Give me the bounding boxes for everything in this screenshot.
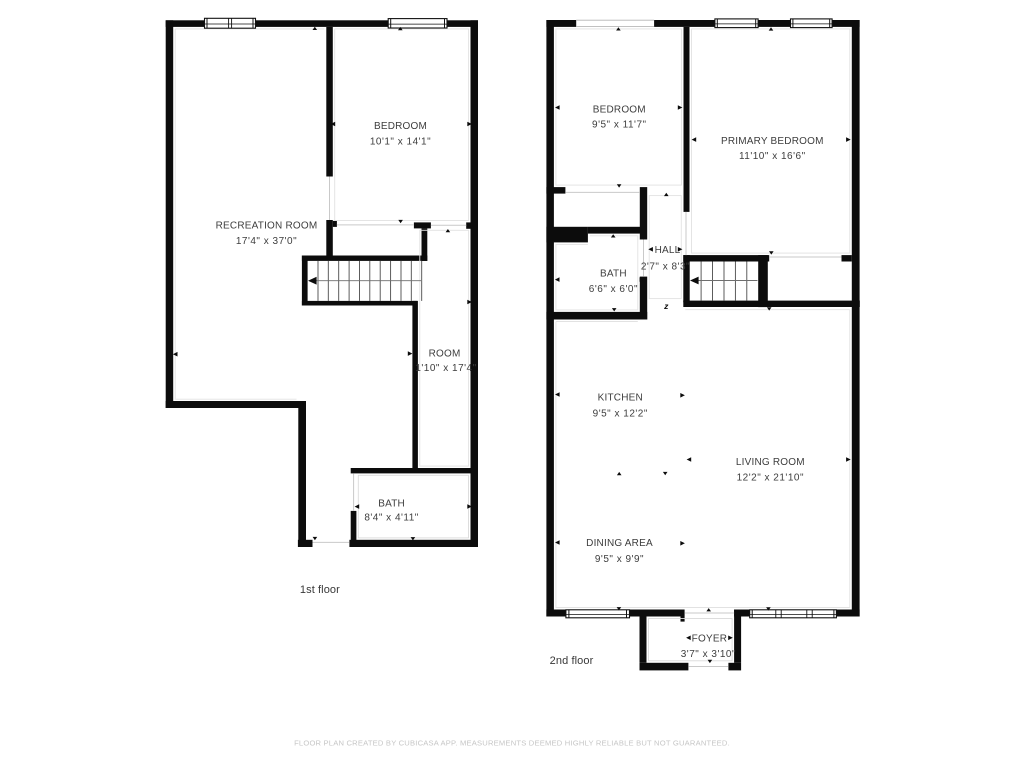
svg-text:BATH: BATH [600,268,627,279]
svg-text:FLOOR PLAN CREATED BY CUBICASA: FLOOR PLAN CREATED BY CUBICASA APP. MEAS… [294,738,730,747]
svg-text:1'10" x 17'4": 1'10" x 17'4" [415,363,476,374]
svg-text:10'1" x 14'1": 10'1" x 14'1" [370,137,431,148]
svg-text:11'10" x 16'6": 11'10" x 16'6" [739,151,806,162]
svg-text:PRIMARY BEDROOM: PRIMARY BEDROOM [721,136,824,147]
svg-text:8'4" x 4'11": 8'4" x 4'11" [364,513,419,524]
svg-text:BATH: BATH [378,498,405,509]
svg-text:RECREATION ROOM: RECREATION ROOM [216,221,318,232]
svg-text:2'7" x 8'3": 2'7" x 8'3" [641,261,690,272]
svg-text:9'5" x 11'7": 9'5" x 11'7" [592,119,647,130]
svg-text:z: z [663,301,669,311]
svg-text:BEDROOM: BEDROOM [593,104,646,115]
svg-text:HALL: HALL [655,245,681,256]
svg-text:3'7" x 3'10": 3'7" x 3'10" [681,649,736,660]
svg-text:1st floor: 1st floor [300,584,340,596]
svg-text:LIVING ROOM: LIVING ROOM [736,457,805,468]
svg-text:9'5" x 9'9": 9'5" x 9'9" [595,554,644,565]
svg-text:9'5" x 12'2": 9'5" x 12'2" [593,408,648,419]
svg-text:KITCHEN: KITCHEN [598,393,643,404]
svg-text:12'2" x 21'10": 12'2" x 21'10" [737,473,804,484]
svg-text:BEDROOM: BEDROOM [374,121,427,132]
svg-text:6'6" x 6'0": 6'6" x 6'0" [589,284,638,295]
svg-text:DINING AREA: DINING AREA [586,538,653,549]
svg-text:2nd floor: 2nd floor [550,655,594,667]
svg-text:17'4" x 37'0": 17'4" x 37'0" [236,236,297,247]
svg-text:ROOM: ROOM [429,348,461,359]
svg-text:FOYER: FOYER [692,634,727,645]
